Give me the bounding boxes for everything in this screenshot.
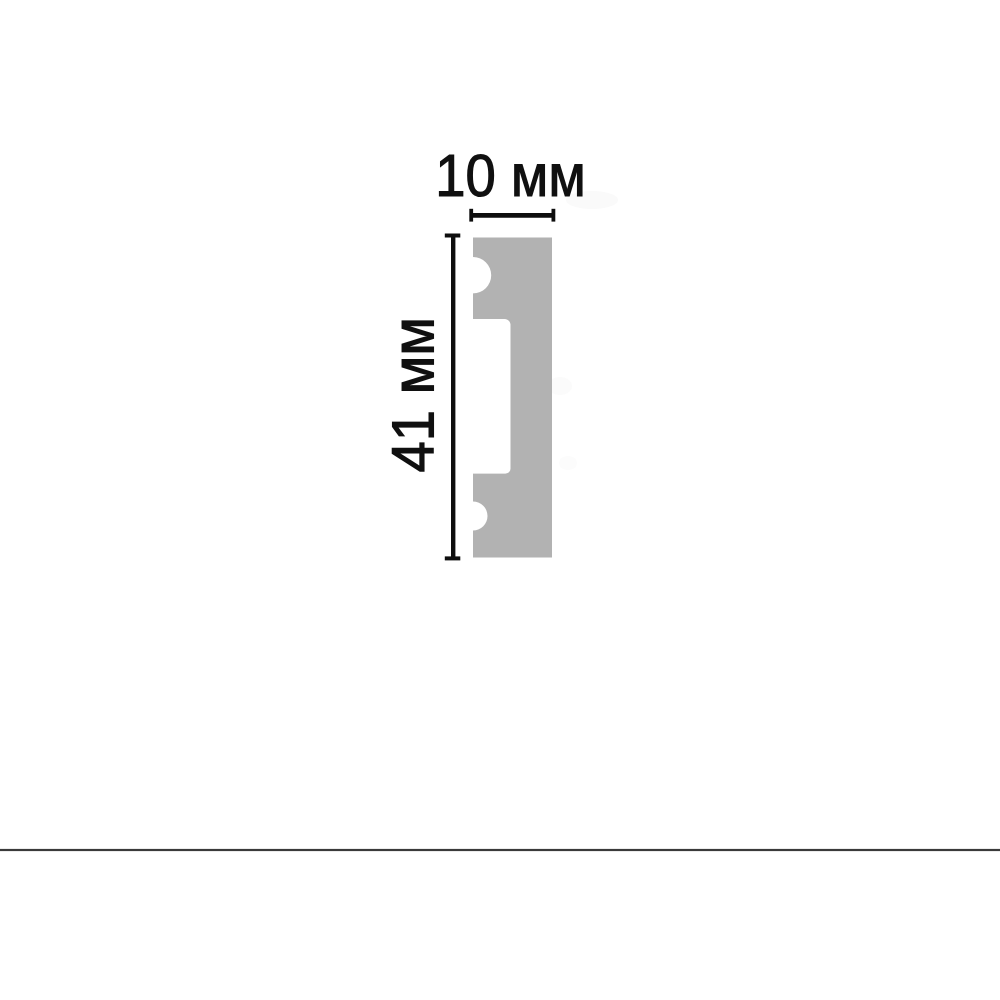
svg-text:41 мм: 41 мм bbox=[380, 317, 447, 473]
svg-text:10 мм: 10 мм bbox=[435, 142, 586, 209]
